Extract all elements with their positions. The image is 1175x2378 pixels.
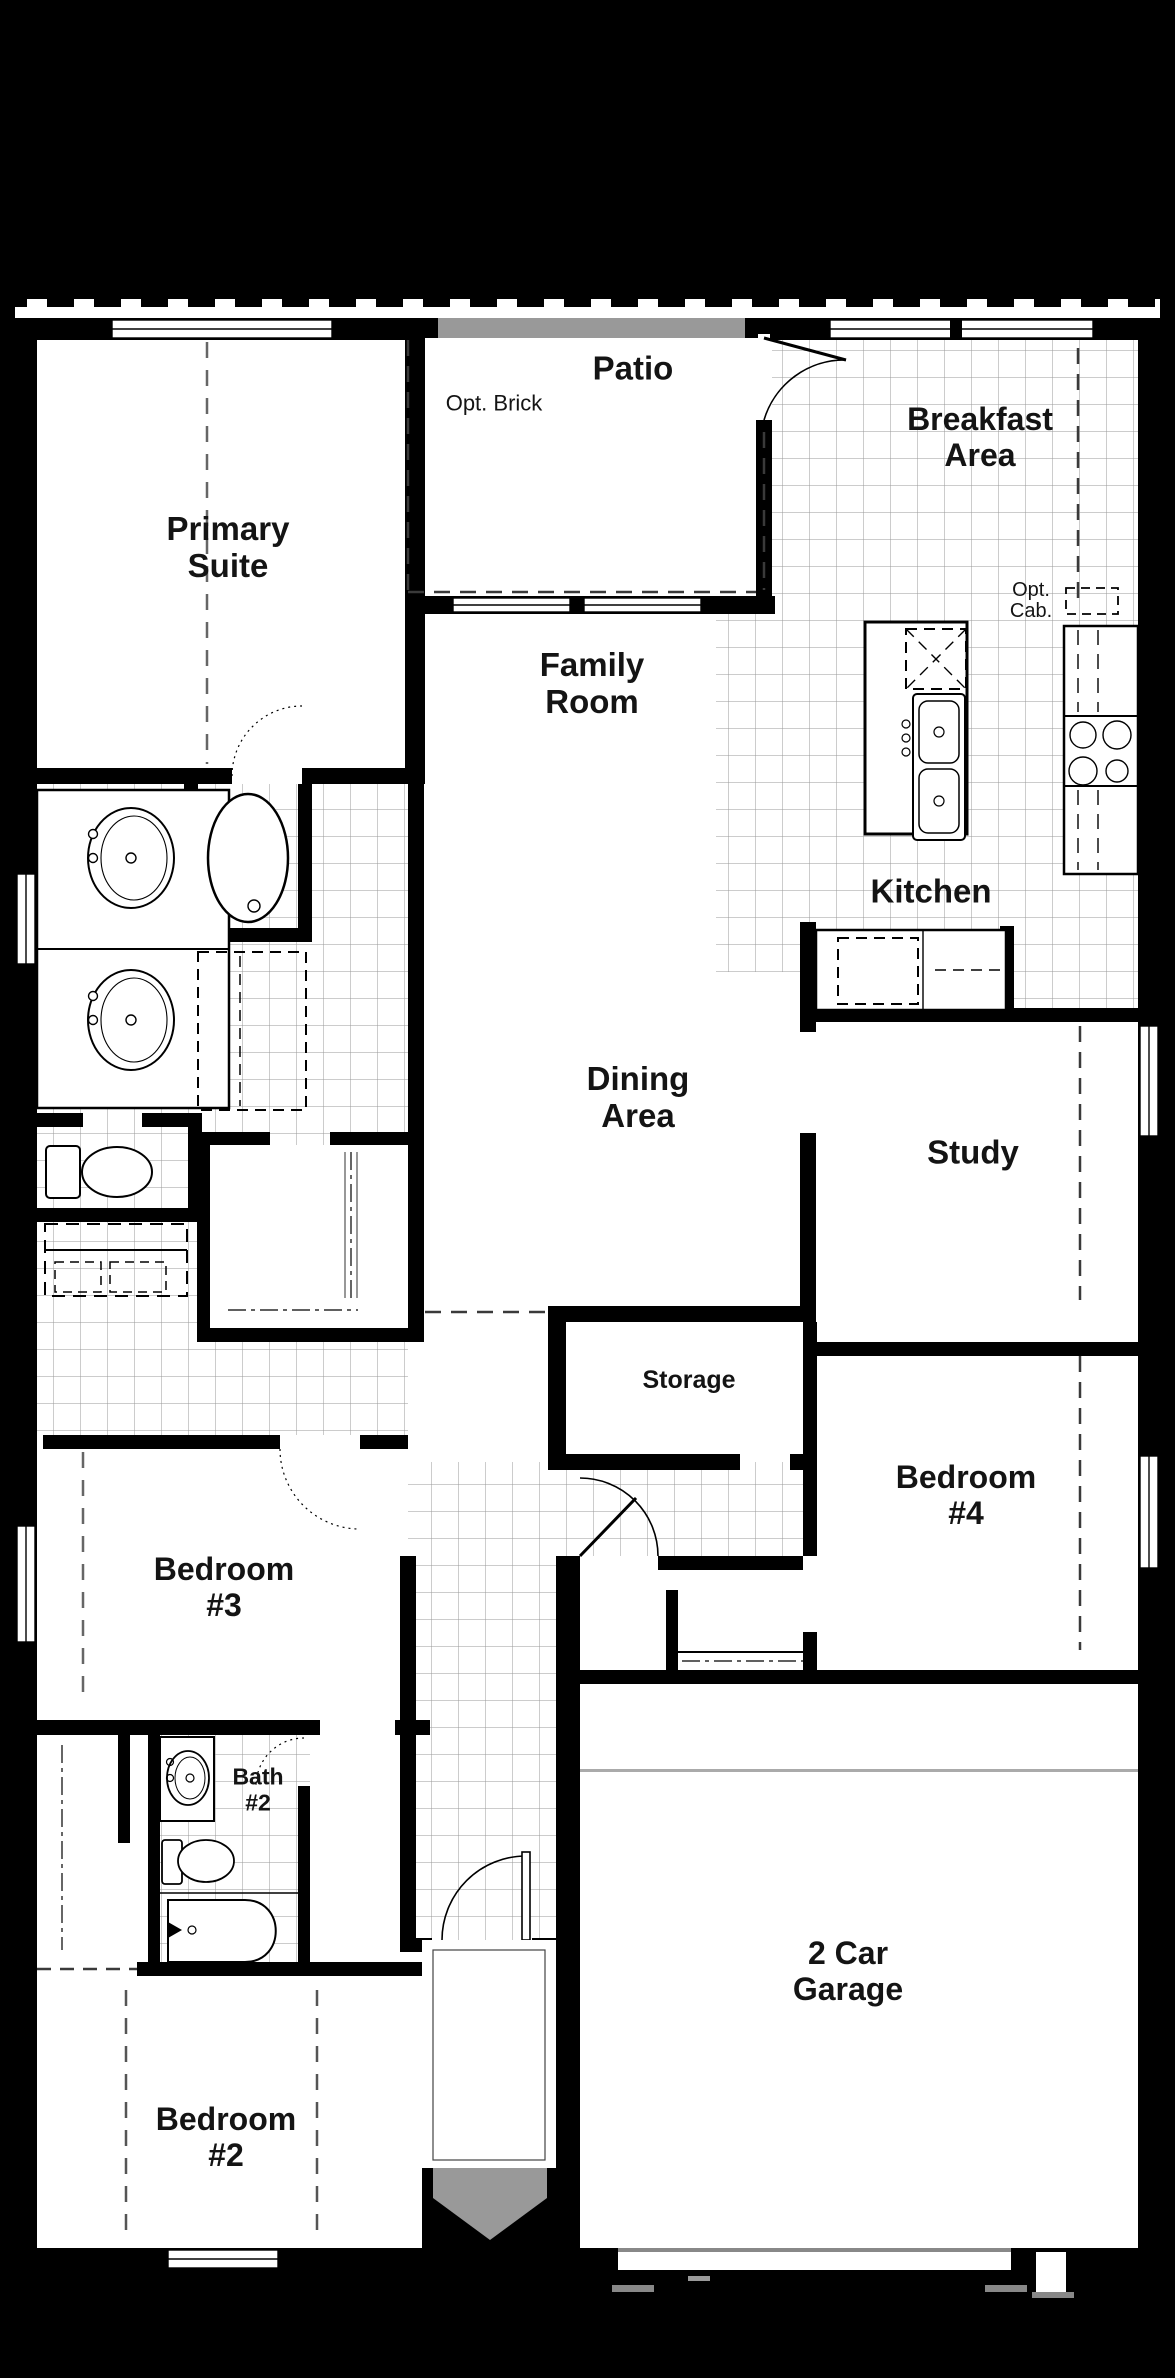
bath2-vanity-icon — [160, 1737, 214, 1821]
kitchen-island-icon — [865, 622, 967, 840]
floorplan-drawing — [0, 0, 1175, 2378]
window-breakfast-top — [830, 318, 1093, 340]
garden-tub-icon — [208, 794, 288, 922]
toilet-icon — [46, 1146, 152, 1198]
bath2-toilet-icon — [162, 1840, 234, 1884]
window-bath-left — [17, 874, 35, 964]
floorplan-page: Patio Opt. Brick Breakfast Area Primary … — [0, 0, 1175, 2378]
pantry-counter-icon — [816, 930, 1006, 1010]
garage-ceiling-line — [578, 1769, 1138, 1772]
vanity-sink-icon — [88, 970, 174, 1070]
window-primary-top — [112, 320, 332, 338]
primary-closet-floor — [210, 1145, 408, 1328]
window-bed2-bottom — [168, 2250, 278, 2268]
patio-roof-bar — [425, 318, 758, 338]
window-bed3-left — [17, 1526, 35, 1642]
garage-door — [612, 2248, 1074, 2298]
range-counter-icon — [1064, 588, 1138, 874]
window-study-right — [1140, 1026, 1158, 1136]
window-bed4-right — [1140, 1456, 1158, 1568]
garage-door-line — [618, 2248, 1011, 2252]
vanity-sink-icon — [88, 808, 174, 908]
primary-vanity — [37, 790, 229, 1108]
